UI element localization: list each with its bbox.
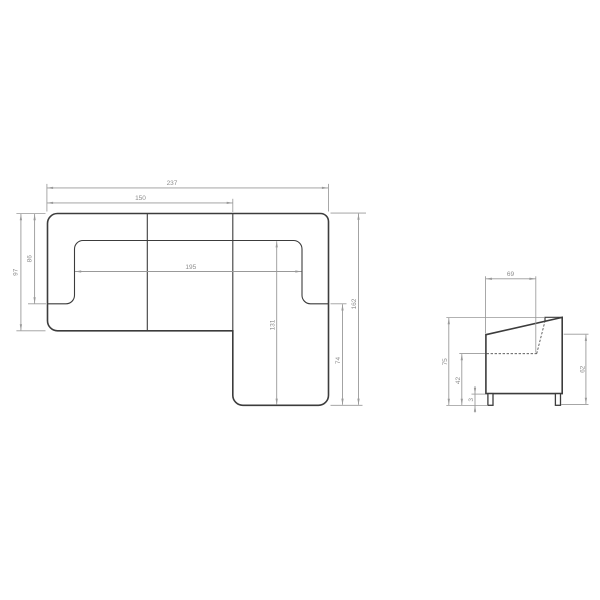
svg-text:162: 162: [351, 298, 358, 309]
svg-text:131: 131: [269, 319, 276, 330]
svg-text:74: 74: [335, 357, 342, 365]
svg-text:237: 237: [167, 180, 178, 187]
svg-text:69: 69: [507, 271, 515, 278]
svg-text:195: 195: [185, 264, 196, 271]
svg-text:75: 75: [442, 358, 449, 366]
svg-text:97: 97: [12, 268, 19, 276]
svg-text:3: 3: [468, 398, 475, 402]
svg-text:42: 42: [455, 377, 462, 385]
svg-text:150: 150: [135, 195, 146, 202]
svg-text:62: 62: [580, 365, 587, 373]
svg-text:86: 86: [27, 255, 34, 263]
